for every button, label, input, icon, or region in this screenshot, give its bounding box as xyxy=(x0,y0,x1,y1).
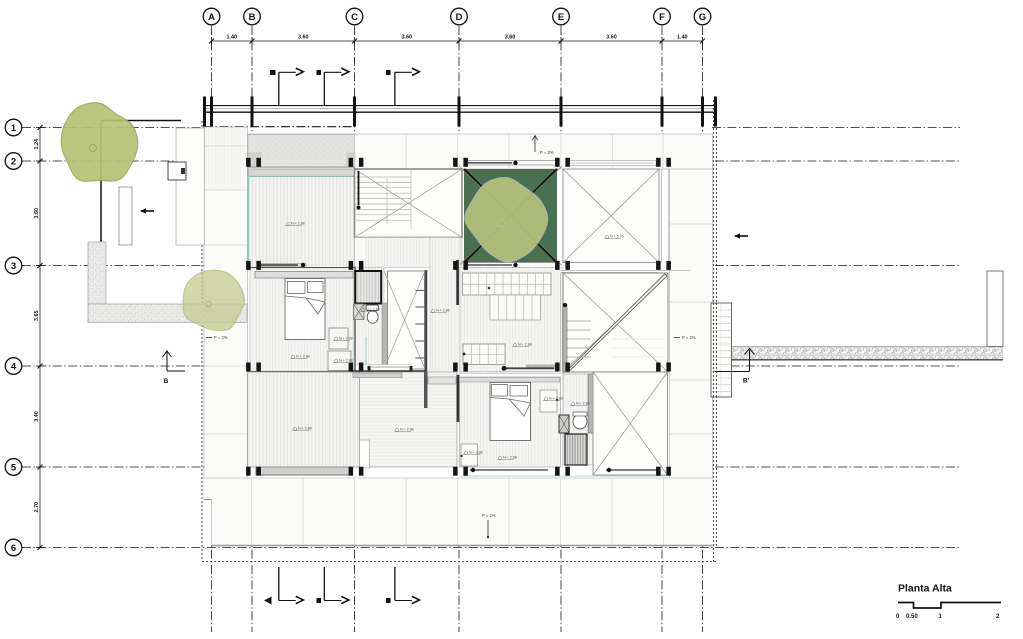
svg-text:N + 2.88: N + 2.88 xyxy=(339,337,353,341)
svg-text:N + 2.88: N + 2.88 xyxy=(298,427,312,431)
svg-text:N + 2.88: N + 2.88 xyxy=(366,308,380,312)
svg-text:1.40: 1.40 xyxy=(677,35,688,41)
svg-text:3.60: 3.60 xyxy=(298,35,309,41)
svg-text:A: A xyxy=(208,12,215,23)
svg-text:N + 2.88: N + 2.88 xyxy=(291,222,305,226)
svg-text:N + 2.88: N + 2.88 xyxy=(576,402,590,406)
svg-text:3.60: 3.60 xyxy=(402,35,413,41)
svg-text:3: 3 xyxy=(11,261,16,272)
svg-text:N + 2.88: N + 2.88 xyxy=(296,355,310,359)
svg-text:Planta Alta: Planta Alta xyxy=(898,583,952,595)
svg-text:0.50: 0.50 xyxy=(906,614,918,620)
svg-text:1.40: 1.40 xyxy=(227,35,238,41)
svg-text:3.60: 3.60 xyxy=(606,35,617,41)
svg-text:5: 5 xyxy=(11,462,17,473)
svg-text:3.60: 3.60 xyxy=(505,35,516,41)
svg-text:1: 1 xyxy=(11,123,17,134)
svg-text:N + 5.76: N + 5.76 xyxy=(610,235,624,239)
svg-text:2.70: 2.70 xyxy=(34,502,40,513)
svg-text:N + 2.88: N + 2.88 xyxy=(503,456,517,460)
svg-text:6: 6 xyxy=(11,543,16,554)
svg-text:E: E xyxy=(558,12,564,23)
svg-text:N + 2.88: N + 2.88 xyxy=(436,309,450,313)
svg-text:3.60: 3.60 xyxy=(34,208,40,219)
svg-text:N + 2.88: N + 2.88 xyxy=(518,343,532,347)
svg-text:D: D xyxy=(456,12,463,23)
svg-text:2: 2 xyxy=(11,156,16,167)
svg-text:N + 2.88: N + 2.88 xyxy=(469,451,483,455)
svg-text:N + 2.88: N + 2.88 xyxy=(400,428,414,432)
svg-text:P = 2%: P = 2% xyxy=(214,335,228,340)
svg-text:3.40: 3.40 xyxy=(34,411,40,422)
svg-text:C: C xyxy=(351,12,358,23)
svg-text:F: F xyxy=(659,12,665,23)
svg-text:G: G xyxy=(699,12,706,23)
svg-text:4: 4 xyxy=(11,361,17,372)
svg-text:3.65: 3.65 xyxy=(34,311,40,322)
svg-text:N + 2.88: N + 2.88 xyxy=(549,397,563,401)
svg-text:N + 2.88: N + 2.88 xyxy=(339,359,353,363)
svg-text:B: B xyxy=(164,378,169,385)
svg-text:P = 2%: P = 2% xyxy=(482,513,496,518)
svg-text:P = 2%: P = 2% xyxy=(682,335,696,340)
svg-text:B: B xyxy=(249,12,256,23)
svg-text:P = 2%: P = 2% xyxy=(540,150,554,155)
svg-text:B': B' xyxy=(743,378,750,385)
svg-text:1.24: 1.24 xyxy=(34,139,40,150)
